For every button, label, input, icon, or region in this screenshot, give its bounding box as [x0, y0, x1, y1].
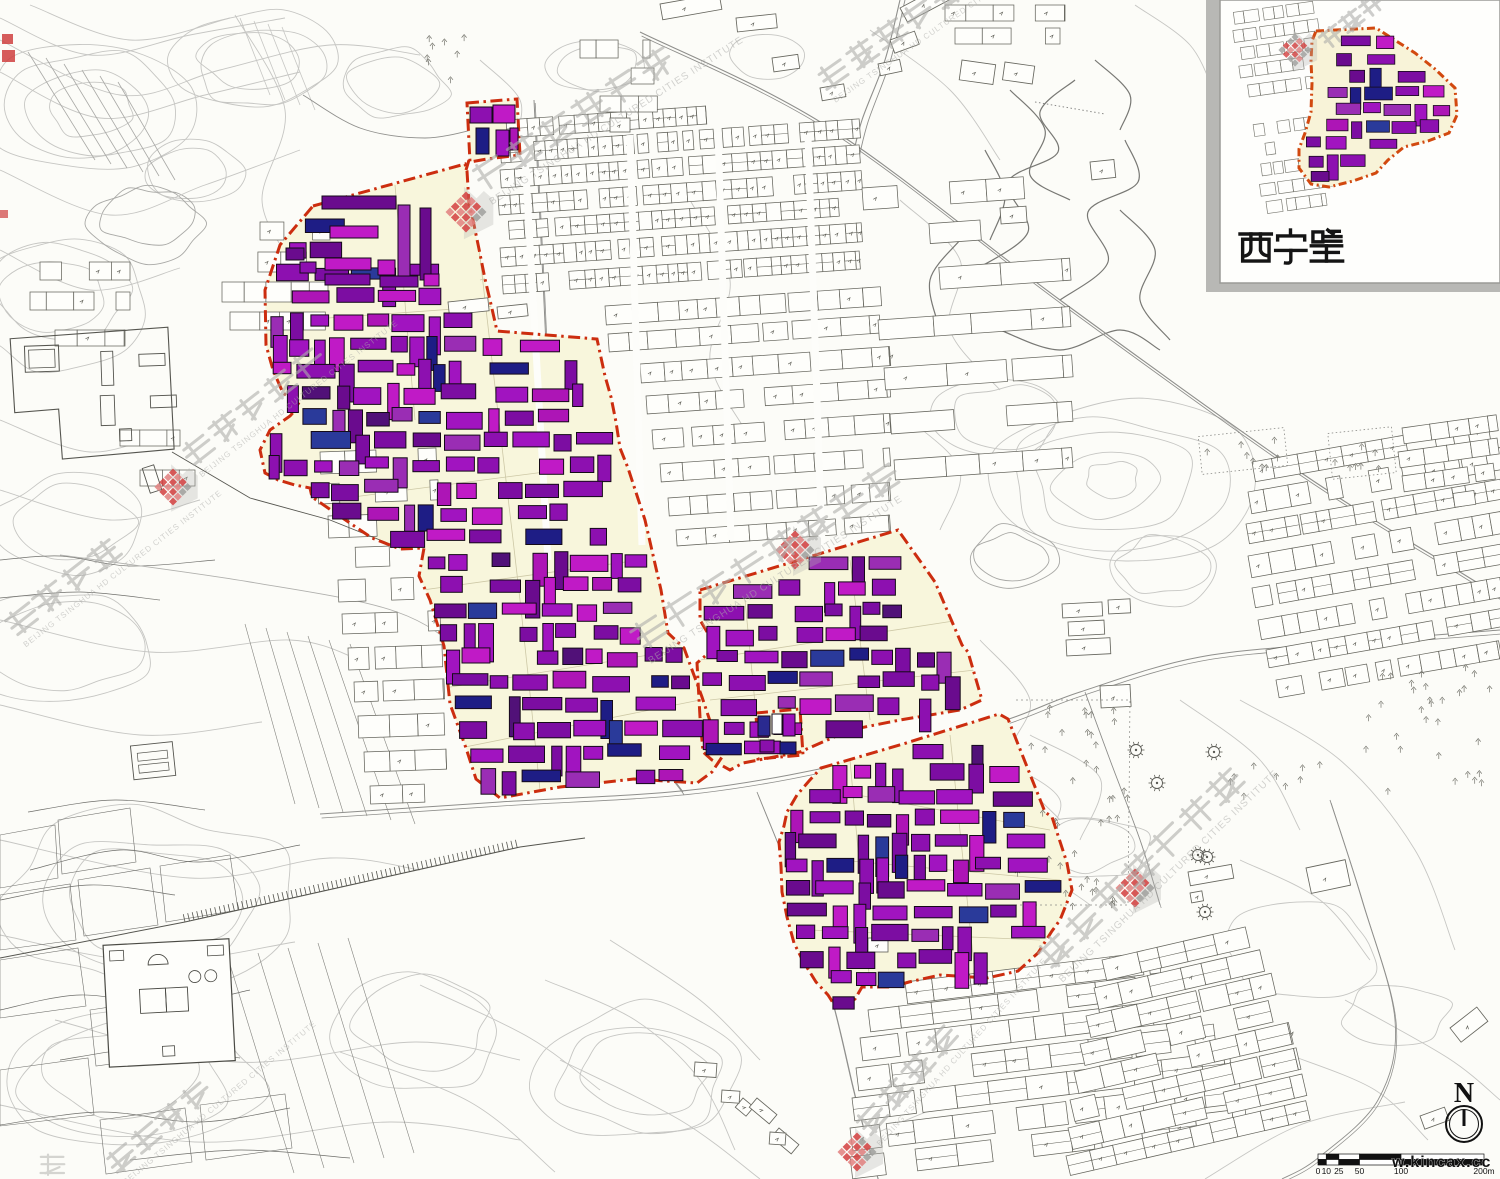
svg-text:N: N: [1454, 1078, 1474, 1109]
svg-text:10: 10: [1322, 1166, 1332, 1176]
svg-text:50: 50: [1355, 1166, 1365, 1176]
svg-text:0: 0: [1316, 1166, 1321, 1176]
svg-text:25: 25: [1334, 1166, 1344, 1176]
svg-text:w.kincax.cc: w.kincax.cc: [1391, 1154, 1491, 1171]
